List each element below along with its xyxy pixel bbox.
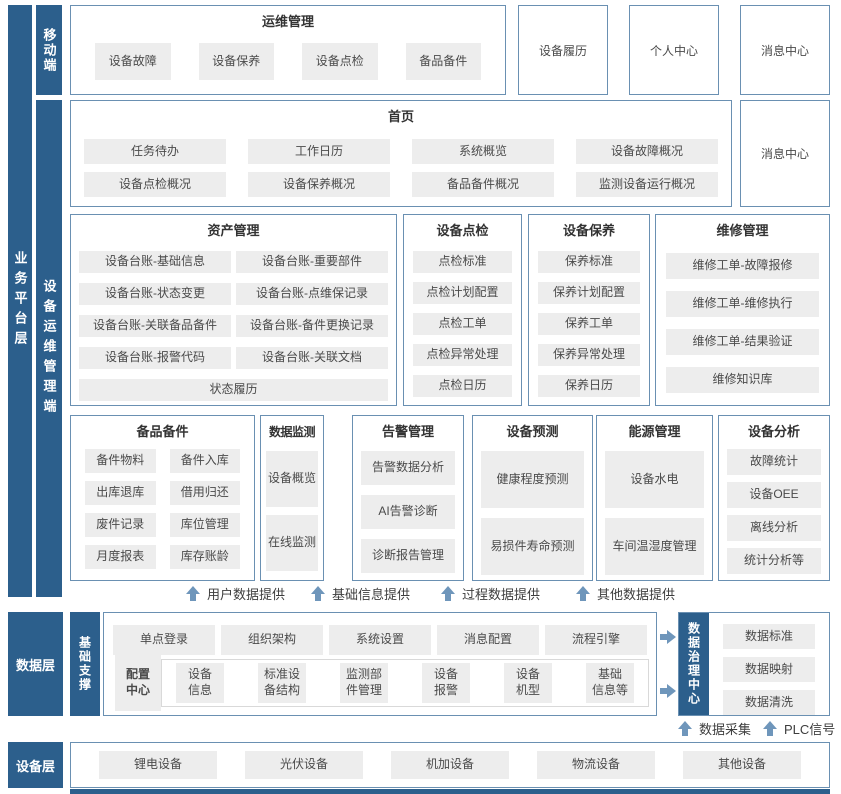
data-row1: 单点登录组织架构系统设置消息配置流程引擎 (113, 625, 647, 655)
alarm-items: 告警数据分析AI告警诊断诊断报告管理 (361, 451, 455, 573)
spare-item: 备件入库 (170, 449, 241, 473)
up-arrow-icon (311, 586, 325, 601)
upkeep-item: 保养标准 (538, 251, 640, 273)
up-arrow-icon (186, 586, 200, 601)
flow-label: 过程数据提供 (462, 584, 540, 603)
alarm-item: 诊断报告管理 (361, 539, 455, 573)
spare-item: 库位管理 (170, 513, 241, 537)
home-title: 首页 (71, 109, 731, 125)
data-row2-item: 标准设 备结构 (258, 663, 306, 703)
repair-item: 维修知识库 (666, 367, 819, 393)
layer-device-ops: 设备运维管理端 (36, 100, 62, 597)
repair-item: 维修工单-维修执行 (666, 291, 819, 317)
device-box: 锂电设备光伏设备机加设备物流设备其他设备 (70, 742, 830, 788)
home-item: 设备保养概况 (248, 172, 390, 197)
asset-item: 设备台账-关联备品备件 (79, 315, 231, 337)
asset-item: 设备台账-基础信息 (79, 251, 231, 273)
data-row2-item: 设备 机型 (504, 663, 552, 703)
upkeep-item: 保养异常处理 (538, 344, 640, 366)
upkeep-items: 保养标准保养计划配置保养工单保养异常处理保养日历 (538, 251, 640, 397)
device-item: 锂电设备 (99, 751, 217, 779)
predict-box: 设备预测 健康程度预测易损件寿命预测 (472, 415, 593, 581)
inspection-box: 设备点检 点检标准点检计划配置点检工单点检异常处理点检日历 (403, 214, 522, 406)
energy-item: 设备水电 (605, 451, 704, 508)
predict-item: 健康程度预测 (481, 451, 584, 508)
mobile-standalone-box: 消息中心 (740, 5, 830, 95)
mobile-ops-item: 设备点检 (302, 43, 378, 80)
inspection-items: 点检标准点检计划配置点检工单点检异常处理点检日历 (413, 251, 512, 397)
data-row2-item: 监测部 件管理 (340, 663, 388, 703)
spare-item: 备件物料 (85, 449, 156, 473)
architecture-diagram: 业务平台层 移动端 设备运维管理端 运维管理 设备故障设备保养设备点检备品备件 … (0, 0, 841, 794)
upkeep-item: 保养日历 (538, 375, 640, 397)
config-center-box: 配置 中心 (115, 655, 161, 711)
monitor-title: 数据监测 (261, 424, 323, 440)
data-governance-label: 数据治理中心 (686, 622, 703, 706)
layer-mobile-label: 移动端 (40, 28, 59, 73)
flow-plc-signal: PLC信号 (763, 720, 835, 736)
upkeep-item: 保养计划配置 (538, 282, 640, 304)
base-support-label: 基础支撑 (77, 636, 94, 692)
spare-item: 借用归还 (170, 481, 241, 505)
spare-items: 备件物料备件入库出库退库借用归还废件记录库位管理月度报表库存账龄 (85, 449, 240, 569)
upkeep-item: 保养工单 (538, 313, 640, 335)
analysis-box: 设备分析 故障统计设备OEE离线分析统计分析等 (718, 415, 830, 581)
home-item: 任务待办 (84, 139, 226, 164)
asset-title: 资产管理 (71, 223, 396, 239)
home-item: 工作日历 (248, 139, 390, 164)
layer-data: 数据层 (8, 612, 63, 716)
layer-mobile: 移动端 (36, 5, 62, 95)
home-item: 备品备件概况 (412, 172, 554, 197)
analysis-title: 设备分析 (719, 424, 829, 440)
inspection-item: 点检标准 (413, 251, 512, 273)
flow-label: 数据采集 (699, 719, 751, 738)
flow-data-collect: 数据采集 (678, 720, 751, 736)
asset-item: 设备台账-报警代码 (79, 347, 231, 369)
spare-item: 出库退库 (85, 481, 156, 505)
message-center-box: 消息中心 (740, 100, 830, 207)
layer-device-label: 设备层 (16, 756, 55, 775)
home-items: 任务待办工作日历系统概览设备故障概况设备点检概况设备保养概况备品备件概况监测设备… (84, 139, 718, 197)
flow-label: 基础信息提供 (332, 584, 410, 603)
data-support-box: 单点登录组织架构系统设置消息配置流程引擎 设备 信息标准设 备结构监测部 件管理… (103, 612, 657, 716)
governance-item: 数据清洗 (723, 690, 815, 715)
repair-box: 维修管理 维修工单-故障报修维修工单-维修执行维修工单-结果验证维修知识库 (655, 214, 830, 406)
energy-title: 能源管理 (597, 424, 712, 440)
energy-item: 车间温湿度管理 (605, 518, 704, 575)
repair-items: 维修工单-故障报修维修工单-维修执行维修工单-结果验证维修知识库 (666, 253, 819, 393)
asset-box: 资产管理 设备台账-基础信息设备台账-重要部件设备台账-状态变更设备台账-点维保… (70, 214, 397, 406)
inspection-item: 点检工单 (413, 313, 512, 335)
repair-item: 维修工单-故障报修 (666, 253, 819, 279)
mobile-ops-item: 设备保养 (199, 43, 275, 80)
data-governance-box: 数据治理中心 数据标准数据映射数据清洗 (678, 612, 830, 716)
home-item: 监测设备运行概况 (576, 172, 718, 197)
repair-title: 维修管理 (656, 223, 829, 239)
asset-footer-item: 状态履历 (79, 379, 388, 401)
up-arrow-icon (576, 586, 590, 601)
flow-base-info: 基础信息提供 (311, 585, 410, 601)
home-item: 系统概览 (412, 139, 554, 164)
right-arrow-icon (660, 684, 676, 698)
inspection-item: 点检日历 (413, 375, 512, 397)
up-arrow-icon (441, 586, 455, 601)
flow-process-data: 过程数据提供 (441, 585, 540, 601)
spare-box: 备品备件 备件物料备件入库出库退库借用归还废件记录库位管理月度报表库存账龄 (70, 415, 255, 581)
asset-item: 设备台账-重要部件 (236, 251, 388, 273)
inspection-item: 点检异常处理 (413, 344, 512, 366)
governance-item: 数据映射 (723, 657, 815, 682)
asset-item: 设备台账-备件更换记录 (236, 315, 388, 337)
spare-title: 备品备件 (71, 424, 254, 440)
layer-business-platform: 业务平台层 (8, 5, 32, 597)
flow-other-data: 其他数据提供 (576, 585, 675, 601)
device-item: 机加设备 (391, 751, 509, 779)
message-center-label: 消息中心 (761, 145, 809, 162)
inspection-title: 设备点检 (404, 223, 521, 239)
device-item: 光伏设备 (245, 751, 363, 779)
mobile-ops-items: 设备故障设备保养设备点检备品备件 (95, 43, 481, 80)
base-support-strip: 基础支撑 (70, 612, 100, 716)
home-item: 设备点检概况 (84, 172, 226, 197)
asset-item: 设备台账-状态变更 (79, 283, 231, 305)
data-row2-subbox: 设备 信息标准设 备结构监测部 件管理设备 报警设备 机型基础 信息等 (161, 659, 649, 707)
mobile-standalone-box: 设备履历 (518, 5, 608, 95)
predict-items: 健康程度预测易损件寿命预测 (481, 451, 584, 575)
flow-label: 其他数据提供 (597, 584, 675, 603)
mobile-standalone-box: 个人中心 (629, 5, 719, 95)
mobile-ops-box: 运维管理 设备故障设备保养设备点检备品备件 (70, 5, 506, 95)
energy-box: 能源管理 设备水电车间温湿度管理 (596, 415, 713, 581)
layer-business-platform-label: 业务平台层 (11, 251, 30, 351)
analysis-item: 设备OEE (727, 482, 821, 508)
data-row1-item: 单点登录 (113, 625, 215, 655)
layer-device-ops-label: 设备运维管理端 (40, 279, 59, 419)
data-row2-item: 设备 信息 (176, 663, 224, 703)
spare-item: 废件记录 (85, 513, 156, 537)
energy-items: 设备水电车间温湿度管理 (605, 451, 704, 575)
mobile-ops-item: 设备故障 (95, 43, 171, 80)
data-row1-item: 消息配置 (437, 625, 539, 655)
governance-items: 数据标准数据映射数据清洗 (723, 624, 815, 715)
device-item: 其他设备 (683, 751, 801, 779)
data-row2-item: 设备 报警 (422, 663, 470, 703)
asset-item: 设备台账-关联文档 (236, 347, 388, 369)
mobile-standalone-boxes: 设备履历个人中心消息中心 (518, 5, 830, 95)
monitor-items: 设备概览在线监测 (266, 451, 318, 571)
analysis-items: 故障统计设备OEE离线分析统计分析等 (727, 449, 821, 574)
layer-data-label: 数据层 (16, 655, 55, 674)
asset-item: 设备台账-点维保记录 (236, 283, 388, 305)
home-item: 设备故障概况 (576, 139, 718, 164)
predict-title: 设备预测 (473, 424, 592, 440)
governance-item: 数据标准 (723, 624, 815, 649)
analysis-item: 离线分析 (727, 515, 821, 541)
mobile-ops-title: 运维管理 (71, 14, 505, 30)
spare-item: 月度报表 (85, 545, 156, 569)
repair-item: 维修工单-结果验证 (666, 329, 819, 355)
data-row2-item: 基础 信息等 (586, 663, 634, 703)
device-item: 物流设备 (537, 751, 655, 779)
up-arrow-icon (763, 721, 777, 736)
bottom-accent-bar (70, 789, 830, 794)
asset-items: 设备台账-基础信息设备台账-重要部件设备台账-状态变更设备台账-点维保记录设备台… (79, 251, 388, 369)
data-row1-item: 系统设置 (329, 625, 431, 655)
flow-label: PLC信号 (784, 719, 835, 738)
alarm-title: 告警管理 (353, 424, 463, 440)
home-box: 首页 任务待办工作日历系统概览设备故障概况设备点检概况设备保养概况备品备件概况监… (70, 100, 732, 207)
up-arrow-icon (678, 721, 692, 736)
alarm-box: 告警管理 告警数据分析AI告警诊断诊断报告管理 (352, 415, 464, 581)
inspection-item: 点检计划配置 (413, 282, 512, 304)
flow-label: 用户数据提供 (207, 584, 285, 603)
flow-user-data: 用户数据提供 (186, 585, 285, 601)
monitor-box: 数据监测 设备概览在线监测 (260, 415, 324, 581)
upkeep-title: 设备保养 (529, 223, 649, 239)
spare-item: 库存账龄 (170, 545, 241, 569)
monitor-item: 设备概览 (266, 451, 318, 507)
alarm-item: 告警数据分析 (361, 451, 455, 485)
upkeep-box: 设备保养 保养标准保养计划配置保养工单保养异常处理保养日历 (528, 214, 650, 406)
predict-item: 易损件寿命预测 (481, 518, 584, 575)
analysis-item: 故障统计 (727, 449, 821, 475)
right-arrow-icon (660, 630, 676, 644)
monitor-item: 在线监测 (266, 515, 318, 571)
data-row1-item: 流程引擎 (545, 625, 647, 655)
alarm-item: AI告警诊断 (361, 495, 455, 529)
mobile-ops-item: 备品备件 (406, 43, 482, 80)
layer-device: 设备层 (8, 742, 63, 788)
data-row1-item: 组织架构 (221, 625, 323, 655)
data-governance-strip: 数据治理中心 (679, 613, 709, 715)
analysis-item: 统计分析等 (727, 548, 821, 574)
